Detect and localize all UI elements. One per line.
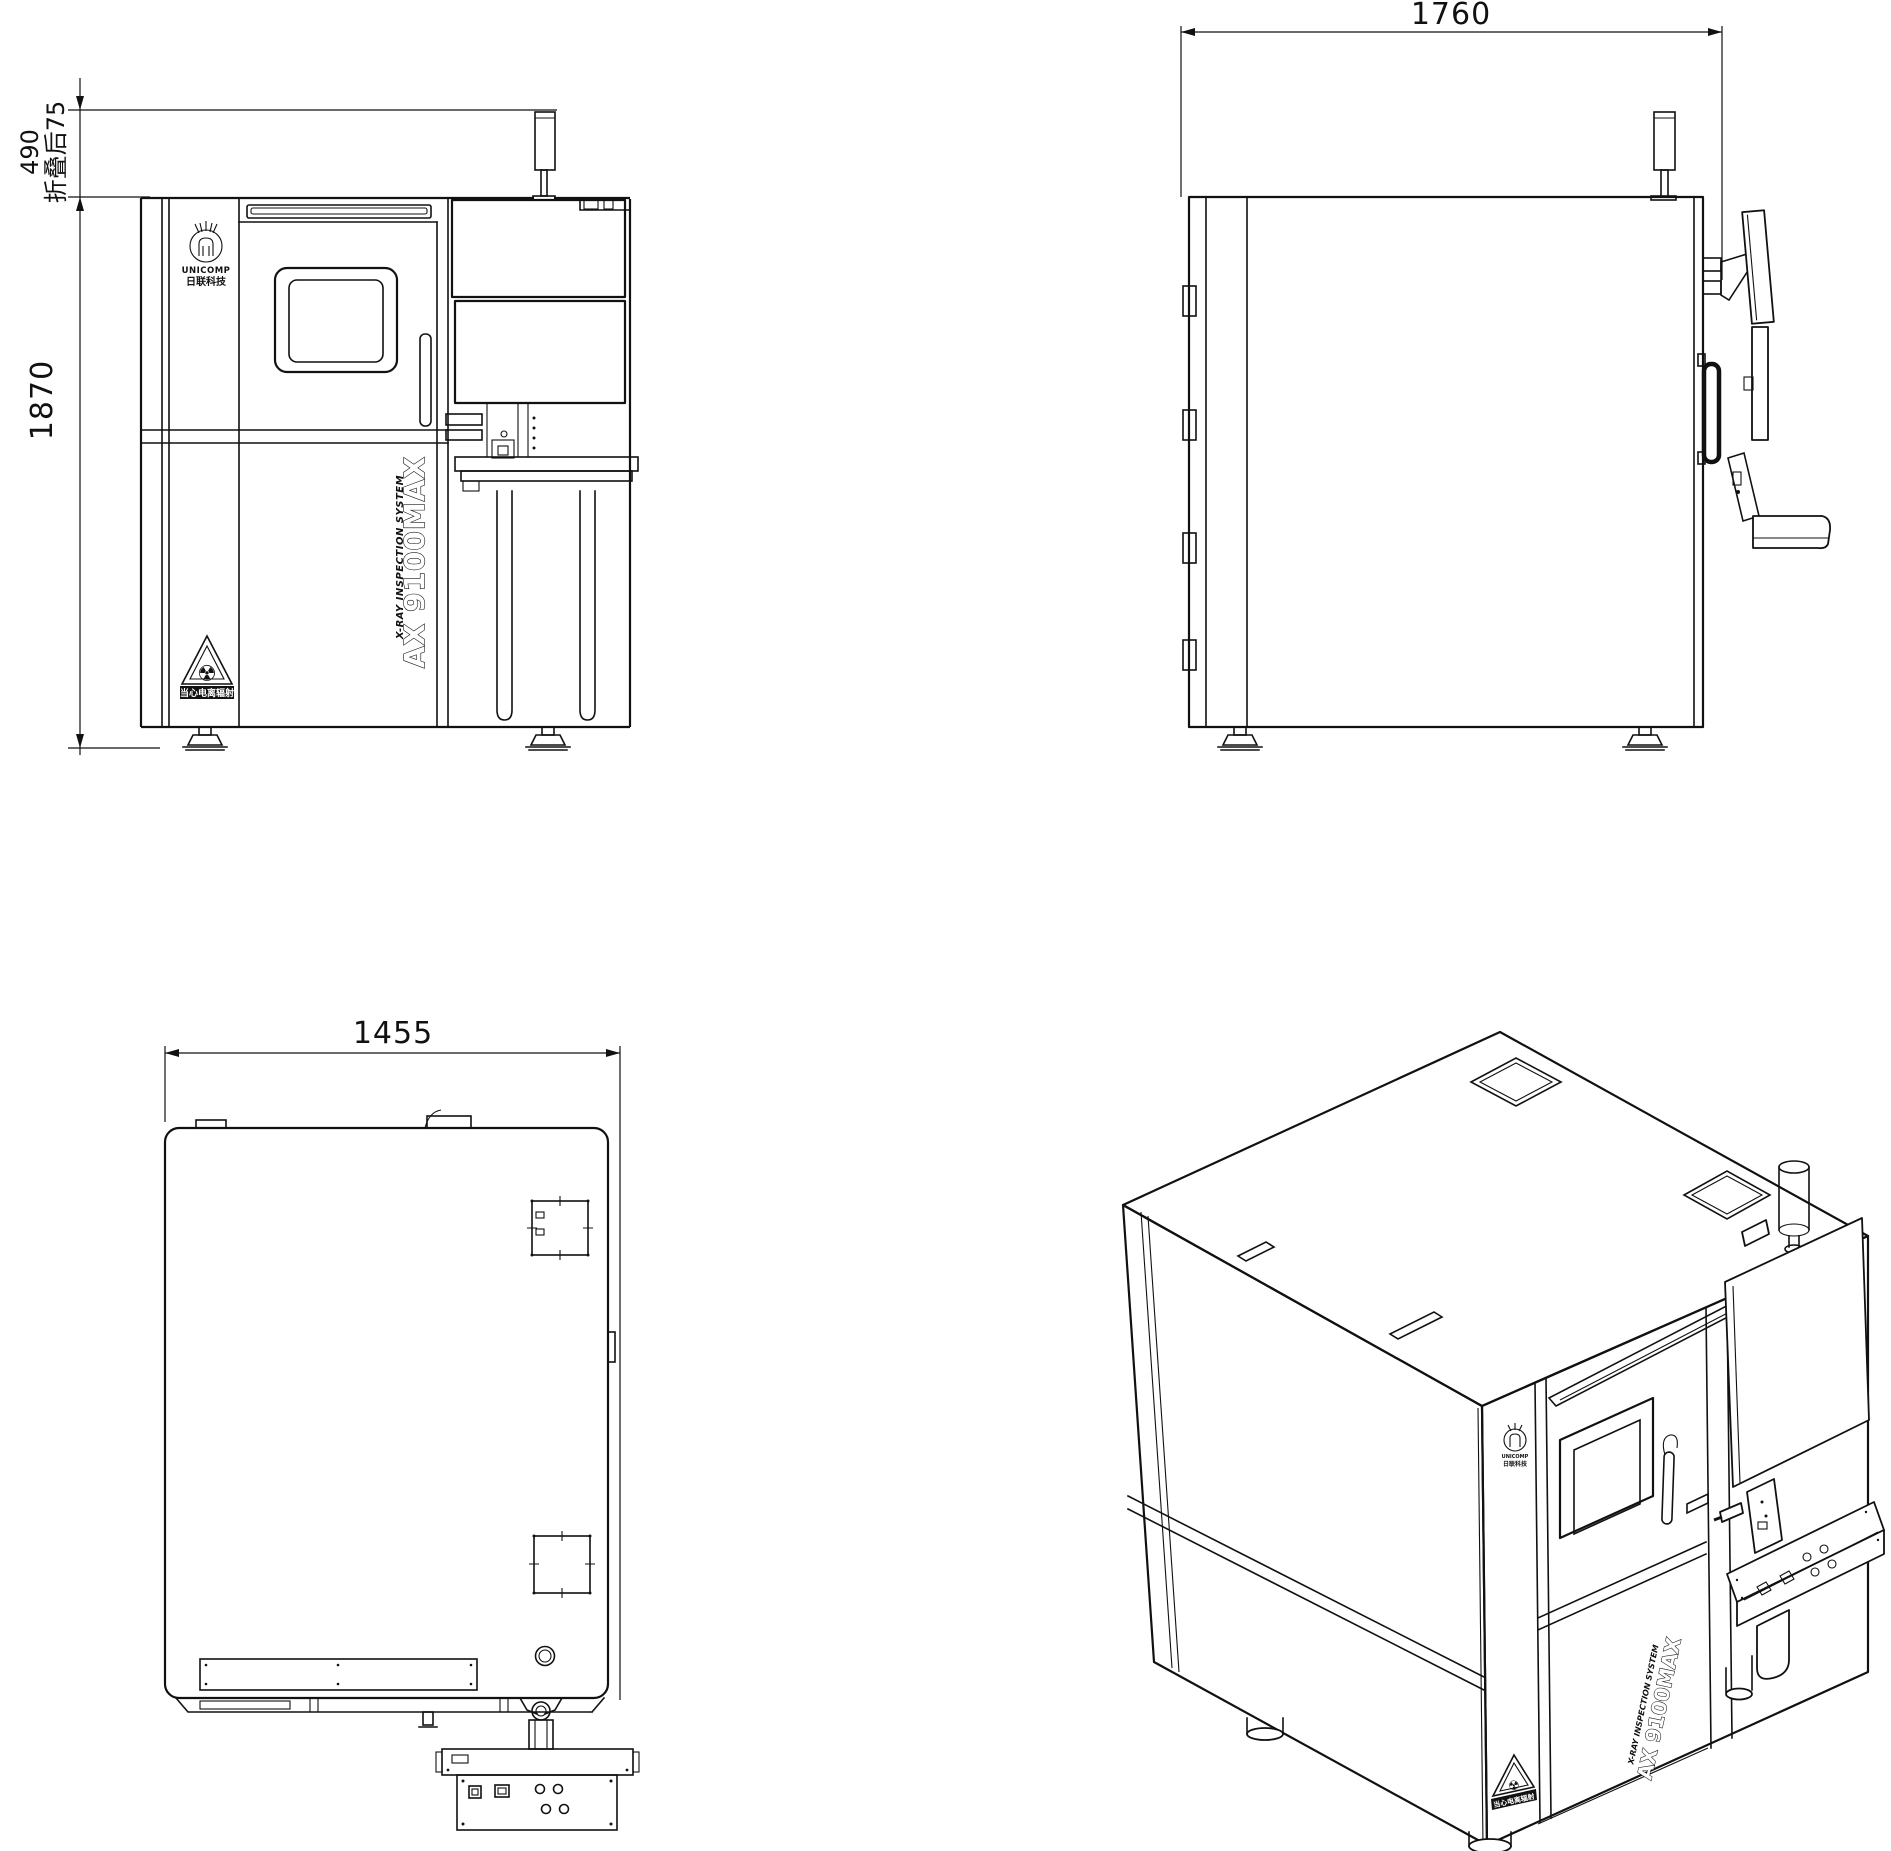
dim-tower-value: 490 xyxy=(16,129,44,175)
brand-name-iso: UNICOMP xyxy=(1502,1454,1529,1460)
monitor-panel-side xyxy=(1742,210,1774,323)
brand-name-cn: 日联科技 xyxy=(186,275,227,288)
dim-depth-1760: 1760 xyxy=(1181,0,1722,280)
brand-name-cn-iso: 日联科技 xyxy=(1503,1460,1528,1468)
lift-table xyxy=(455,457,638,471)
top-hatch-2 xyxy=(529,1531,595,1598)
door-handle xyxy=(420,334,431,426)
dim-height-1870: 1870 xyxy=(25,360,160,748)
door-window xyxy=(275,268,397,372)
top-view: 1455 xyxy=(165,1016,639,1830)
vent-slot xyxy=(200,1659,477,1690)
radiation-warning-label: 当心电离辐射 xyxy=(180,687,234,699)
radiation-warning-front: ☢ 当心电离辐射 xyxy=(180,636,234,699)
drawing-canvas: 490 折叠后75 1870 xyxy=(0,0,1891,1851)
pendant-handle xyxy=(1704,364,1719,462)
radiation-warning-iso: ☢ 当心电离辐射 xyxy=(1491,1755,1537,1810)
iso-left-face xyxy=(1123,1205,1487,1845)
isometric-view: UNICOMP 日联科技 X-RAY INSPECTION SYSTEM AX … xyxy=(1123,1032,1884,1851)
signal-tower-iso-icon xyxy=(1779,1161,1809,1253)
iso-door-handle xyxy=(1662,1452,1675,1524)
model-label: AX 9100MAX xyxy=(398,456,431,668)
top-machine xyxy=(165,1110,639,1830)
brand-logo-icon-iso xyxy=(1504,1429,1526,1451)
radiation-trefoil-icon: ☢ xyxy=(197,662,217,687)
brand-logo: UNICOMP 日联科技 xyxy=(182,221,231,288)
front-machine xyxy=(141,112,638,750)
monitor-box-front xyxy=(452,200,625,297)
signal-tower-side-icon xyxy=(1651,112,1676,200)
dim-tower-folded-value: 折叠后75 xyxy=(42,101,70,204)
top-hatch-1 xyxy=(527,1196,593,1260)
dim-tower-490: 490 折叠后75 xyxy=(16,78,557,755)
tower-mount-hole xyxy=(536,1647,555,1666)
keyboard-box-front xyxy=(455,301,625,403)
pendant-assembly-top xyxy=(436,1698,639,1830)
iso-support-column xyxy=(1757,1610,1789,1679)
monitor-arm-assembly xyxy=(1698,210,1830,548)
dim-width-1455: 1455 xyxy=(165,1016,620,1700)
iso-brand-logo: UNICOMP 日联科技 xyxy=(1502,1423,1529,1468)
dim-width-value: 1455 xyxy=(353,1016,433,1051)
model-label-front: X-RAY INSPECTION SYSTEM AX 9100MAX xyxy=(395,456,431,668)
side-machine xyxy=(1183,112,1830,750)
iso-pendant-assembly xyxy=(1714,1218,1884,1700)
leveling-feet-side xyxy=(1218,727,1667,750)
iso-monitor-panel xyxy=(1725,1218,1869,1487)
leveling-feet-front xyxy=(183,727,570,750)
side-view: 1760 xyxy=(1181,0,1830,750)
keyboard-tray-folded xyxy=(1752,327,1768,440)
dim-height-value: 1870 xyxy=(25,360,60,440)
engineering-drawing-sheet: 490 折叠后75 1870 xyxy=(0,0,1891,1851)
foot-rest-plate xyxy=(1753,516,1830,548)
brand-logo-icon xyxy=(190,230,222,262)
front-view: 490 折叠后75 1870 xyxy=(16,78,638,755)
keyboard-plate-top xyxy=(442,1749,633,1775)
dim-depth-value: 1760 xyxy=(1411,0,1491,32)
signal-tower-icon xyxy=(533,112,555,200)
radiation-trefoil-icon-iso: ☢ xyxy=(1507,1778,1521,1794)
control-panel-top xyxy=(457,1775,617,1830)
brand-name: UNICOMP xyxy=(182,266,231,276)
